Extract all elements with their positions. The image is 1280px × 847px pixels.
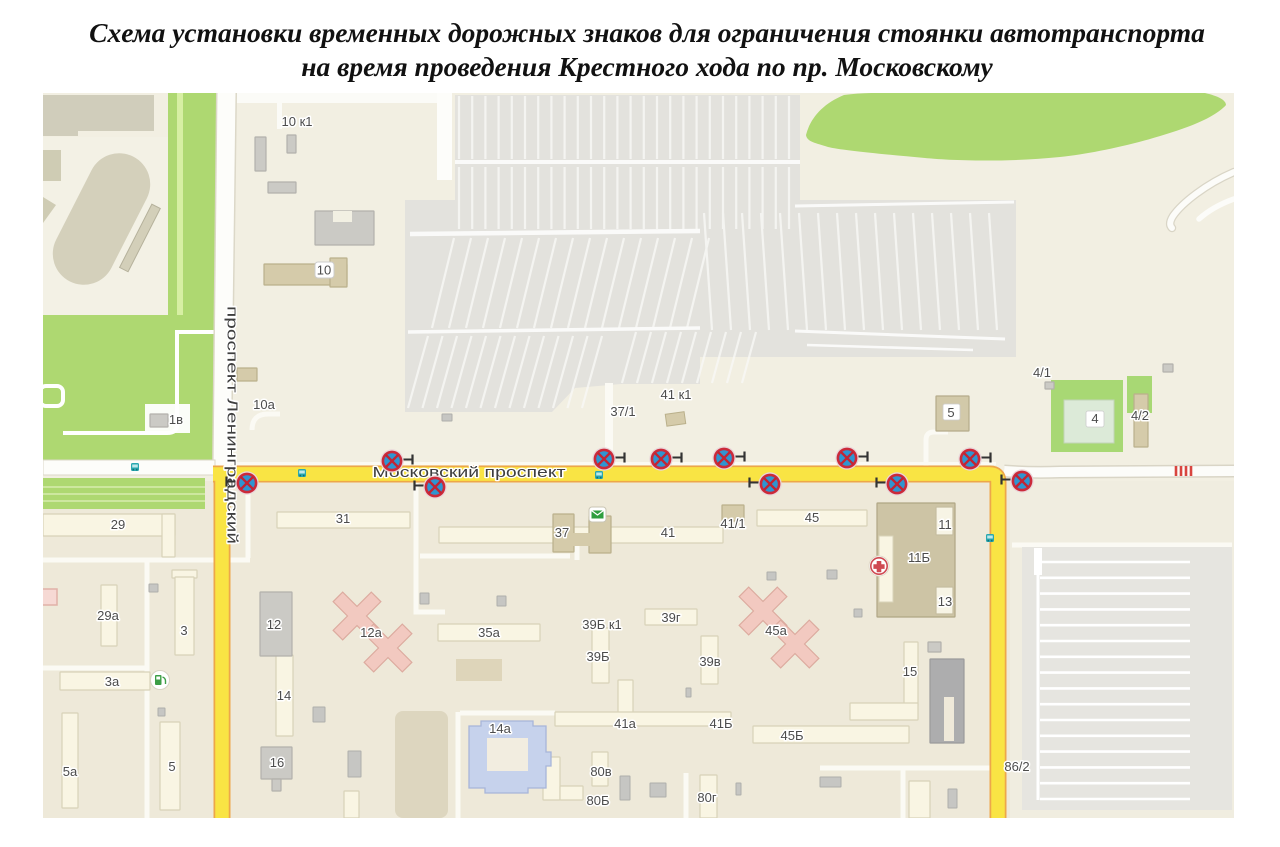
svg-text:12а: 12а xyxy=(360,625,382,640)
svg-text:14а: 14а xyxy=(489,721,511,736)
svg-text:12: 12 xyxy=(267,617,281,632)
svg-text:80г: 80г xyxy=(697,790,716,805)
svg-text:80Б: 80Б xyxy=(587,793,610,808)
svg-text:4/1: 4/1 xyxy=(1033,365,1051,380)
svg-text:5: 5 xyxy=(947,405,954,420)
svg-text:37/1: 37/1 xyxy=(610,404,635,419)
svg-text:35а: 35а xyxy=(478,625,500,640)
svg-text:86/2: 86/2 xyxy=(1004,759,1029,774)
svg-text:11: 11 xyxy=(938,517,952,532)
svg-text:39Б: 39Б xyxy=(587,649,610,664)
svg-text:1в: 1в xyxy=(169,412,183,427)
svg-text:39г: 39г xyxy=(661,610,680,625)
svg-text:3а: 3а xyxy=(105,674,120,689)
svg-text:31: 31 xyxy=(336,511,350,526)
svg-text:10 к1: 10 к1 xyxy=(282,114,313,129)
svg-text:3: 3 xyxy=(180,623,187,638)
svg-text:45: 45 xyxy=(805,510,819,525)
svg-text:41а: 41а xyxy=(614,716,636,731)
svg-text:39в: 39в xyxy=(699,654,720,669)
svg-text:проспект Ленинградский: проспект Ленинградский xyxy=(224,306,241,544)
svg-text:45Б: 45Б xyxy=(781,728,804,743)
svg-text:39Б к1: 39Б к1 xyxy=(582,617,622,632)
svg-text:29а: 29а xyxy=(97,608,119,623)
svg-text:5а: 5а xyxy=(63,764,78,779)
svg-text:13: 13 xyxy=(938,594,952,609)
svg-text:41/1: 41/1 xyxy=(720,516,745,531)
svg-text:10а: 10а xyxy=(253,397,275,412)
svg-text:41 к1: 41 к1 xyxy=(661,387,692,402)
svg-text:5: 5 xyxy=(168,759,175,774)
svg-text:41: 41 xyxy=(661,525,675,540)
svg-text:11Б: 11Б xyxy=(908,550,930,565)
svg-text:16: 16 xyxy=(270,755,284,770)
svg-text:14: 14 xyxy=(277,688,291,703)
svg-text:15: 15 xyxy=(903,664,917,679)
svg-text:29: 29 xyxy=(111,517,125,532)
svg-text:80в: 80в xyxy=(590,764,611,779)
svg-text:10: 10 xyxy=(317,263,331,278)
svg-text:37: 37 xyxy=(555,525,569,540)
svg-text:45а: 45а xyxy=(765,623,787,638)
svg-text:4/2: 4/2 xyxy=(1131,408,1149,423)
svg-text:41Б: 41Б xyxy=(710,716,733,731)
svg-text:4: 4 xyxy=(1091,411,1098,426)
